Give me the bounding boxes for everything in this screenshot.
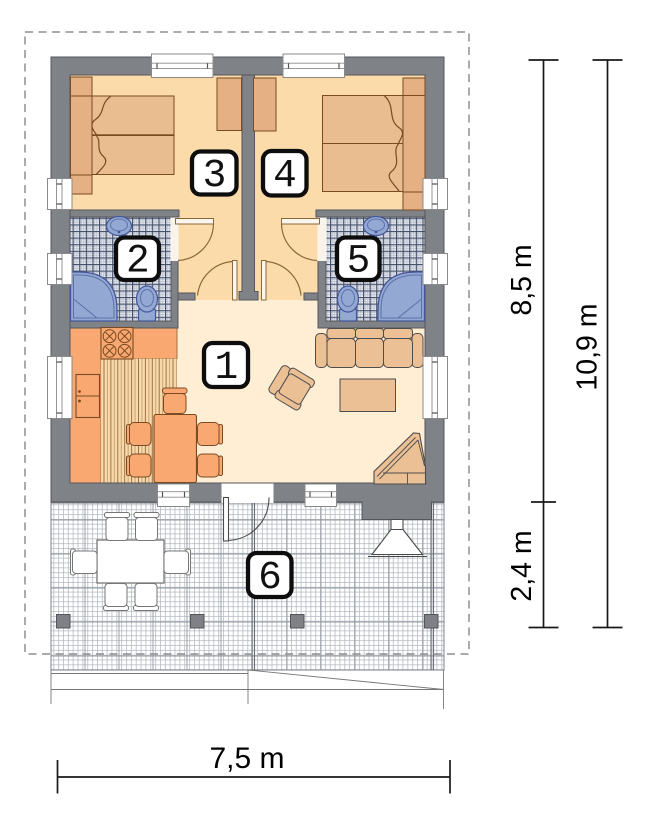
svg-text:2,4 m: 2,4 m	[506, 530, 538, 601]
svg-text:1: 1	[214, 345, 238, 390]
svg-text:4: 4	[273, 153, 297, 198]
svg-text:10,9 m: 10,9 m	[572, 303, 604, 390]
svg-text:2: 2	[126, 239, 150, 284]
svg-text:5: 5	[347, 239, 371, 284]
svg-text:8,5 m: 8,5 m	[506, 244, 538, 315]
svg-text:7,5 m: 7,5 m	[209, 742, 284, 775]
svg-text:3: 3	[203, 153, 227, 198]
svg-text:6: 6	[258, 555, 282, 600]
